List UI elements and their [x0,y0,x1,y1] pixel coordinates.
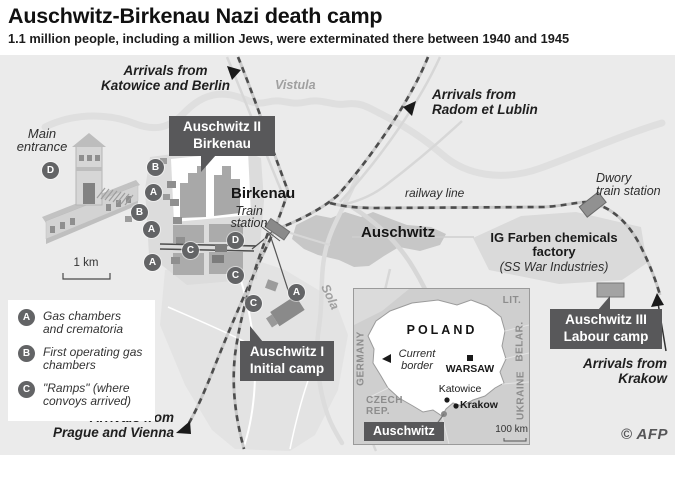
page-subtitle: 1.1 million people, including a million … [8,31,675,46]
poland-label: POLAND [402,323,482,337]
current-border-label: Current border [394,349,440,372]
ukraine-label: UKRAINE [516,366,527,426]
ig-farben-sub-label: (SS War Industries) [480,260,628,274]
belarus-label: BELAR. [515,317,526,367]
badge-c: C [227,267,244,284]
germany-label: GERMANY [356,324,367,394]
badge-b: B [131,204,148,221]
main-entrance-label: Main entrance [8,127,76,153]
arrivals-krakow-label: Arrivals from Krakow [572,357,667,386]
warsaw-label: WARSAW [442,363,498,375]
badge-a: A [144,254,161,271]
lithuania-label: LIT. [498,295,526,306]
auschwitz2-callout: Auschwitz II Birkenau [169,116,275,156]
legend-item: A Gas chambers and crematoria [18,309,151,336]
badge-d-main-entrance: D [42,162,59,179]
footer [0,455,675,500]
krakow-label: Krakow [460,399,508,411]
krakow-marker [453,403,458,408]
auschwitz-inset-callout: Auschwitz [364,422,444,441]
badge-a-icon: A [18,309,35,326]
katowice-label: Katowice [434,383,486,395]
badge-a-auschwitz1: A [288,284,305,301]
auschwitz3-building [597,283,624,297]
arrow-prague-icon [176,421,191,434]
badge-b: B [147,159,164,176]
czech-rep-label: CZECH REP. [366,395,412,417]
poland-inset-map: POLAND Current border WARSAW Katowice Kr… [353,288,530,445]
badge-d-station: D [227,232,244,249]
badge-a: A [145,184,162,201]
scale-bracket [63,273,110,279]
badge-a: A [143,221,160,238]
legend-text: First operating gas chambers [43,345,142,372]
auschwitz-town-label: Auschwitz [361,224,435,241]
infographic: Auschwitz-Birkenau Nazi death camp 1.1 m… [0,0,675,500]
scale-label: 1 km [61,257,111,269]
katowice-marker [444,397,449,402]
main-map: Arrivals from Katowice and Berlin Vistul… [0,55,675,455]
header: Auschwitz-Birkenau Nazi death camp 1.1 m… [0,0,675,55]
legend-text: "Ramps" (where convoys arrived) [43,381,131,408]
badge-c-icon: C [18,381,35,398]
train-station-label: Train station [224,205,274,229]
inset-scale-label: 100 km [488,424,528,435]
ig-farben-label: IG Farben chemicals factory [480,231,628,259]
legend-item: C "Ramps" (where convoys arrived) [18,381,151,408]
birkenau-town-label: Birkenau [231,185,295,202]
auschwitz3-callout: Auschwitz III Labour camp [550,309,662,349]
arrivals-radom-lublin-label: Arrivals from Radom et Lublin [432,88,562,117]
railway-line-label: railway line [405,187,464,199]
page-title: Auschwitz-Birkenau Nazi death camp [8,4,675,29]
warsaw-marker [467,355,473,361]
dwory-station-label: Dwory train station [596,172,675,197]
afp-logo: © AFP [590,426,668,443]
legend-item: B First operating gas chambers [18,345,151,372]
badge-c: C [245,295,262,312]
vistula-river-label: Vistula [275,78,316,92]
badge-c-ramp: C [182,242,199,259]
arrivals-katowice-berlin-label: Arrivals from Katowice and Berlin [88,64,243,93]
legend-text: Gas chambers and crematoria [43,309,123,336]
legend-panel: A Gas chambers and crematoria B First op… [8,300,155,421]
auschwitz1-callout: Auschwitz I Initial camp [240,341,334,381]
vistula-river [45,94,662,175]
badge-b-icon: B [18,345,35,362]
